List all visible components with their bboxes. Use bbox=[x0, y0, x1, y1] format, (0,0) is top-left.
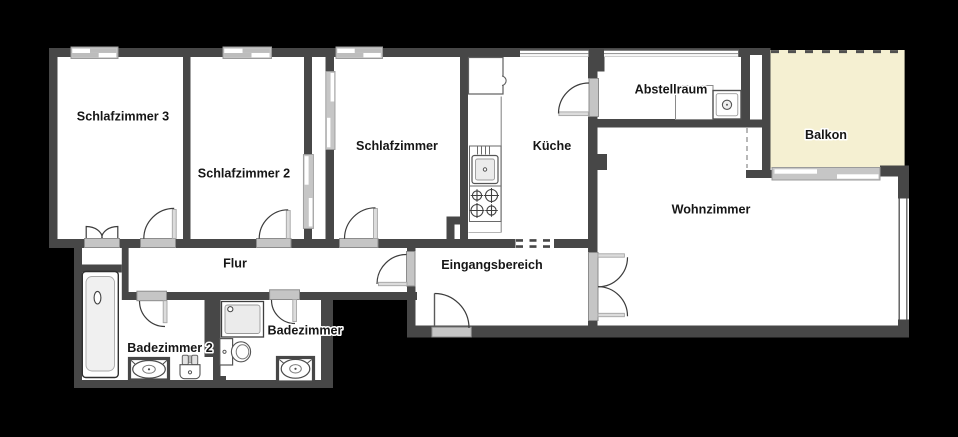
svg-text:Abstellraum: Abstellraum bbox=[635, 83, 708, 97]
svg-text:Flur: Flur bbox=[223, 257, 247, 271]
svg-text:Schlafzimmer 3: Schlafzimmer 3 bbox=[77, 110, 169, 124]
svg-text:Schlafzimmer: Schlafzimmer bbox=[356, 139, 438, 153]
svg-text:Schlafzimmer 2: Schlafzimmer 2 bbox=[198, 167, 290, 181]
svg-text:Badezimmer: Badezimmer bbox=[268, 324, 343, 338]
svg-text:Eingangsbereich: Eingangsbereich bbox=[441, 258, 542, 272]
svg-text:Balkon: Balkon bbox=[805, 128, 847, 142]
svg-text:Badezimmer 2: Badezimmer 2 bbox=[127, 341, 212, 355]
svg-text:Wohnzimmer: Wohnzimmer bbox=[672, 203, 751, 217]
svg-text:Küche: Küche bbox=[533, 139, 572, 153]
